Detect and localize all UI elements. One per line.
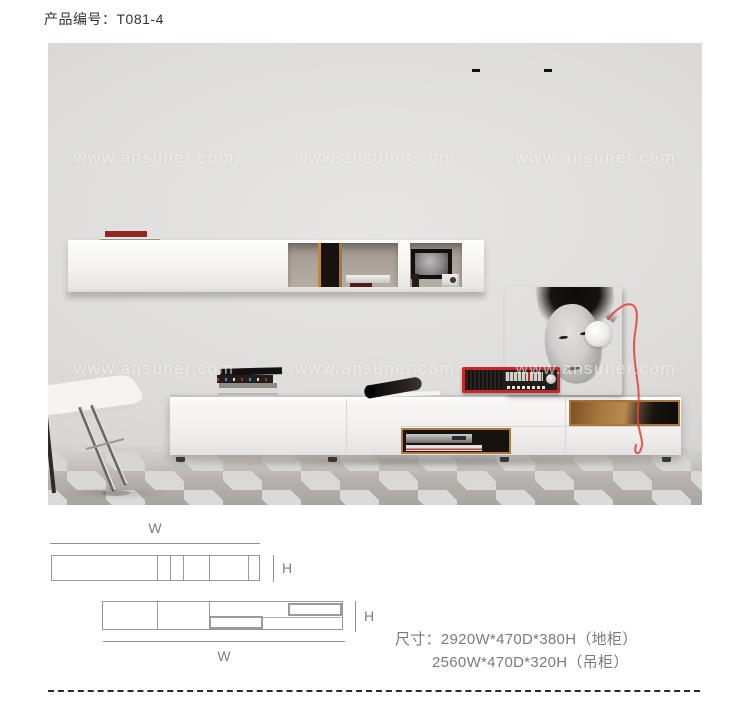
radio-knob (546, 374, 556, 384)
page: 产品编号：T081-4 (0, 0, 750, 713)
diagram2-outline (102, 601, 343, 630)
watermark-text: www.ansuner.com (74, 148, 234, 168)
product-code-label: 产品编号：T081-4 (44, 9, 164, 29)
dvd-compartment (401, 428, 511, 454)
watermark-text: www.ansuner.com (516, 148, 676, 168)
diagram1-divider (170, 556, 171, 580)
radio-buttons (507, 386, 547, 389)
diagram2-height-label: H (364, 608, 374, 624)
diagram1-divider (248, 556, 249, 580)
diagram1-divider (183, 556, 184, 580)
tv-stand-shadow (166, 457, 688, 466)
diagram2-height-line (355, 601, 356, 632)
dvd-stack-white (218, 388, 278, 395)
magazine (406, 445, 482, 451)
diagram1-divider (157, 556, 158, 580)
diagram1-outline (51, 555, 260, 581)
dvd-player (406, 434, 472, 443)
diagram2-bottom-box (209, 616, 263, 629)
wall-cabinet-open-shelf-1 (288, 243, 398, 287)
dvd-stack-spines (217, 375, 273, 383)
wall-cabinet-shadow (66, 292, 486, 301)
cabinet-foot (662, 457, 671, 462)
tv-stand (170, 395, 681, 455)
diagram2-divider (157, 602, 158, 629)
bottom-dashed-divider (48, 690, 700, 692)
dimensions-line-1: 尺寸：2920W*470D*380H（地柜） (395, 628, 638, 649)
dimensions-line-2: 2560W*470D*320H（吊柜） (432, 651, 629, 672)
shelf-books-slab (318, 243, 342, 287)
product-photo: www.ansuner.com www.ansuner.com www.ansu… (48, 43, 702, 505)
diagram1-height-label: H (282, 560, 292, 576)
cabinet-foot (328, 457, 337, 462)
watermark-text: www.ansuner.com (295, 148, 455, 168)
red-radio (462, 367, 560, 393)
radio-foot (544, 69, 552, 72)
white-chair (48, 373, 194, 498)
cabinet-foot (500, 457, 509, 462)
diagram1-divider (209, 556, 210, 580)
diagram1-width-line (50, 543, 260, 544)
framed-photo-image (415, 253, 448, 275)
diagram2-top-right-box (288, 603, 342, 616)
decor-bottle (412, 274, 419, 287)
radio-foot (472, 69, 480, 72)
diagram2-width-label: W (103, 648, 345, 664)
radio-speaker-grille (466, 371, 502, 389)
wood-open-compartment (569, 400, 680, 426)
radio-tuning-dial (505, 372, 543, 381)
watermark-row: www.ansuner.com www.ansuner.com www.ansu… (48, 148, 702, 168)
wall-cabinet-open-shelf-2 (410, 243, 462, 287)
mini-hifi (346, 275, 390, 283)
decor-camera (442, 274, 459, 287)
white-book-on-cabinet (100, 237, 160, 240)
diagram1-height-line (273, 555, 274, 582)
drawer-seam-left (346, 399, 347, 453)
wall-cabinet (68, 240, 484, 292)
watermark-text: www.ansuner.com (295, 359, 455, 379)
diagram2-width-line (103, 641, 345, 642)
shelf-books-small (350, 283, 372, 287)
bulb-lamp (585, 321, 611, 347)
drawer-seam-horizontal (401, 426, 681, 427)
diagram1-width-label: W (50, 520, 260, 536)
